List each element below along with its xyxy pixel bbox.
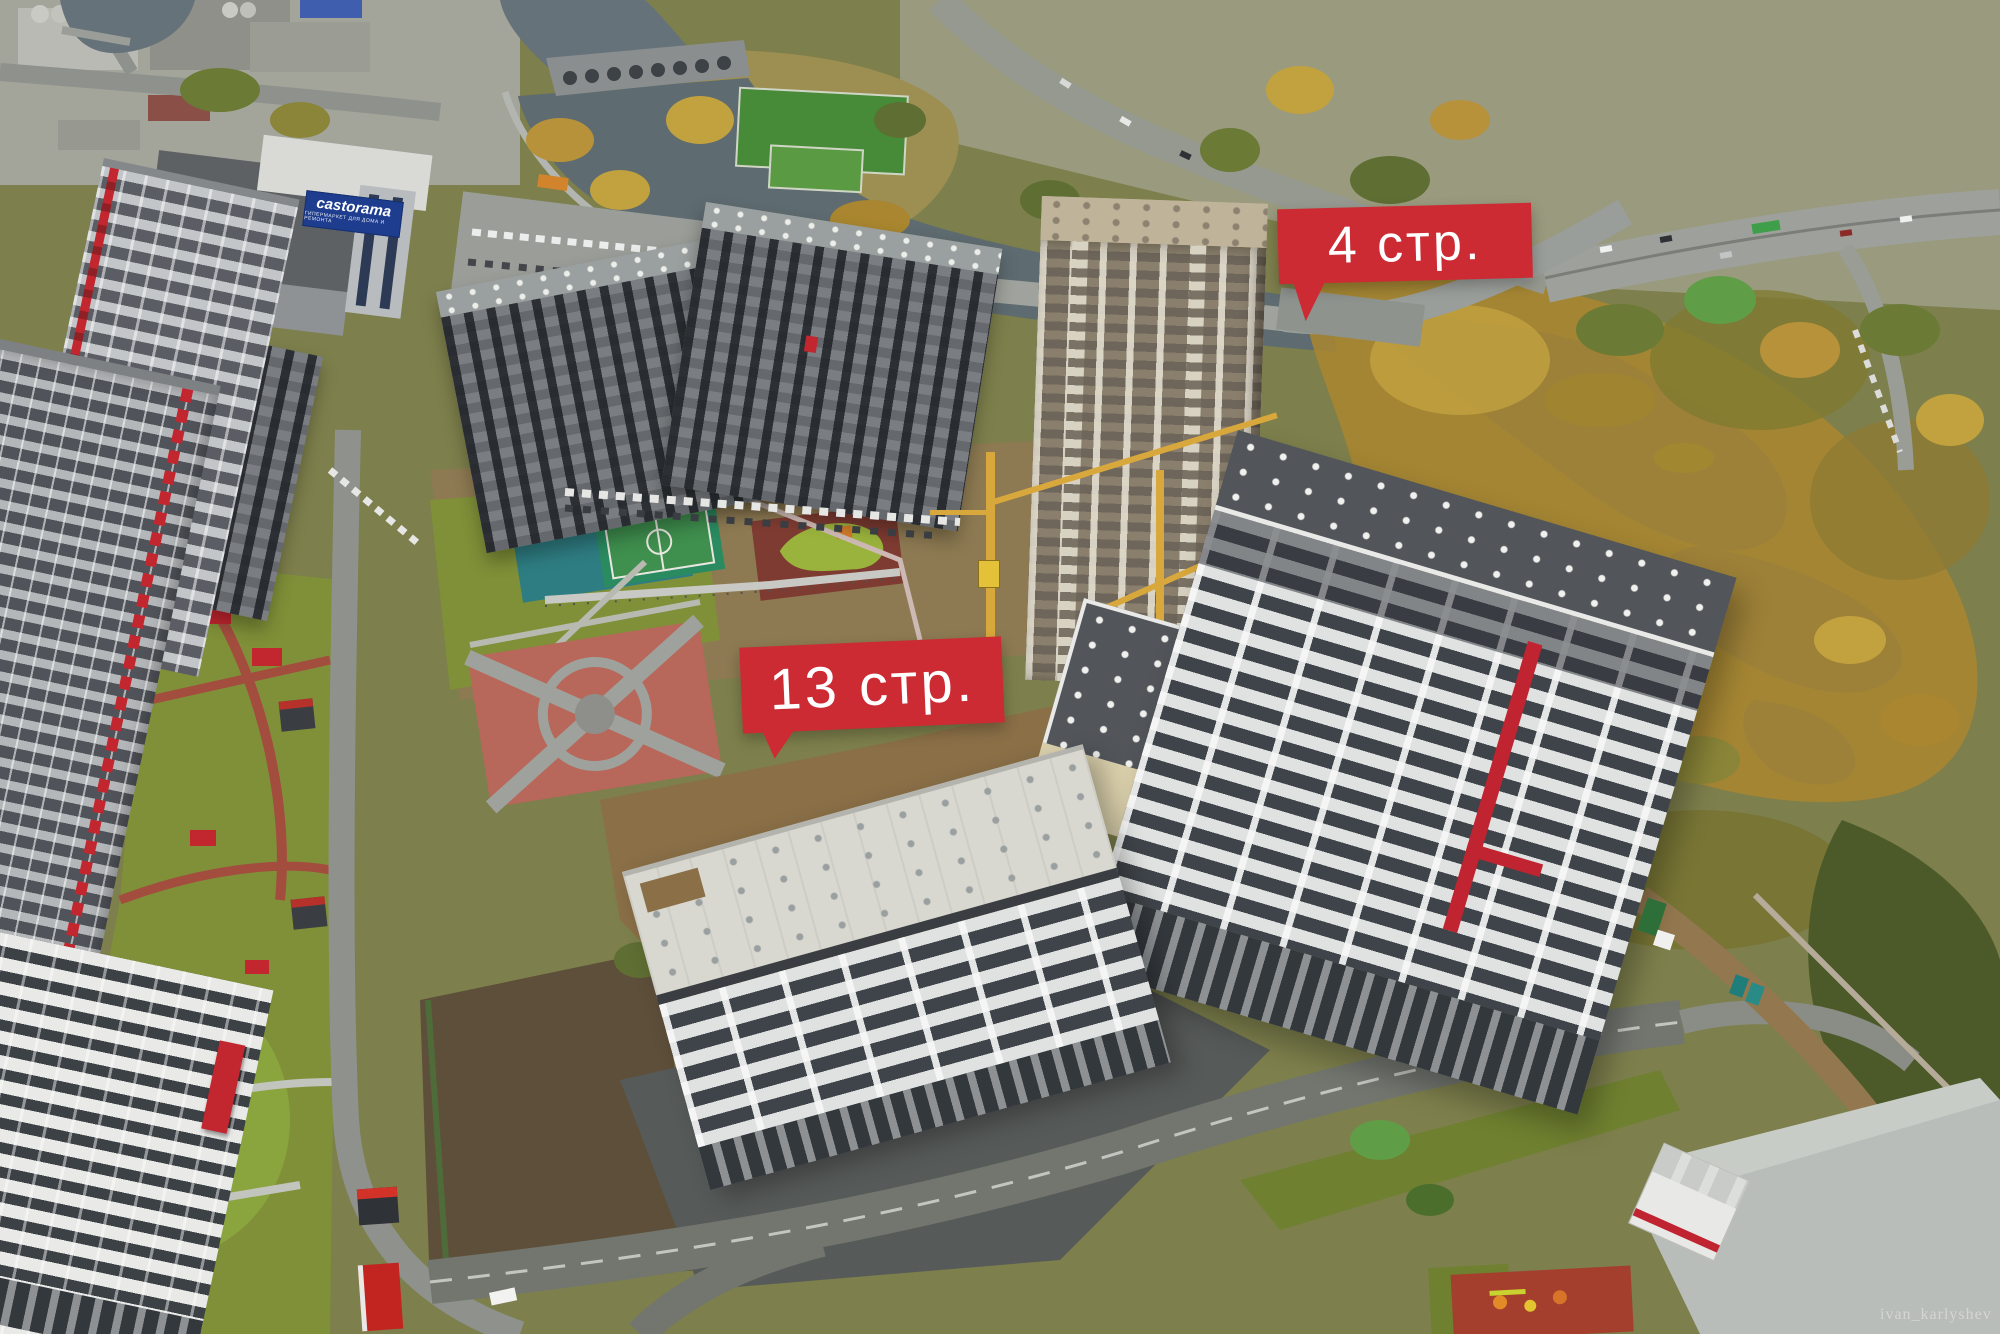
crane-cab bbox=[978, 560, 1000, 588]
red-roof-kiosk-2 bbox=[357, 1187, 399, 1226]
building-4-label: 4 стр. bbox=[1327, 211, 1483, 275]
red-roof-kiosk bbox=[279, 698, 316, 731]
building-4-badge: 4 стр. bbox=[1277, 203, 1533, 285]
aerial-photo: castorama ГИПЕРМАРКЕТ ДЛЯ ДОМА И РЕМОНТА bbox=[0, 0, 2000, 1334]
storefront-row bbox=[0, 1259, 203, 1334]
crane-mast bbox=[1156, 470, 1164, 640]
red-entrance-canopy bbox=[201, 1040, 245, 1133]
fire-truck bbox=[358, 1263, 404, 1332]
red-window bbox=[804, 335, 818, 353]
building-13-badge: 13 стр. bbox=[739, 636, 1005, 733]
watermark: ivan_karlyshev bbox=[1880, 1306, 1992, 1324]
red-roof-kiosk bbox=[291, 896, 328, 929]
crane-mast bbox=[986, 452, 995, 642]
complex-parking bbox=[560, 470, 980, 540]
unfinished-roof bbox=[1040, 196, 1267, 248]
building-13-label: 13 стр. bbox=[768, 647, 976, 723]
crane-counterjib bbox=[930, 510, 992, 515]
